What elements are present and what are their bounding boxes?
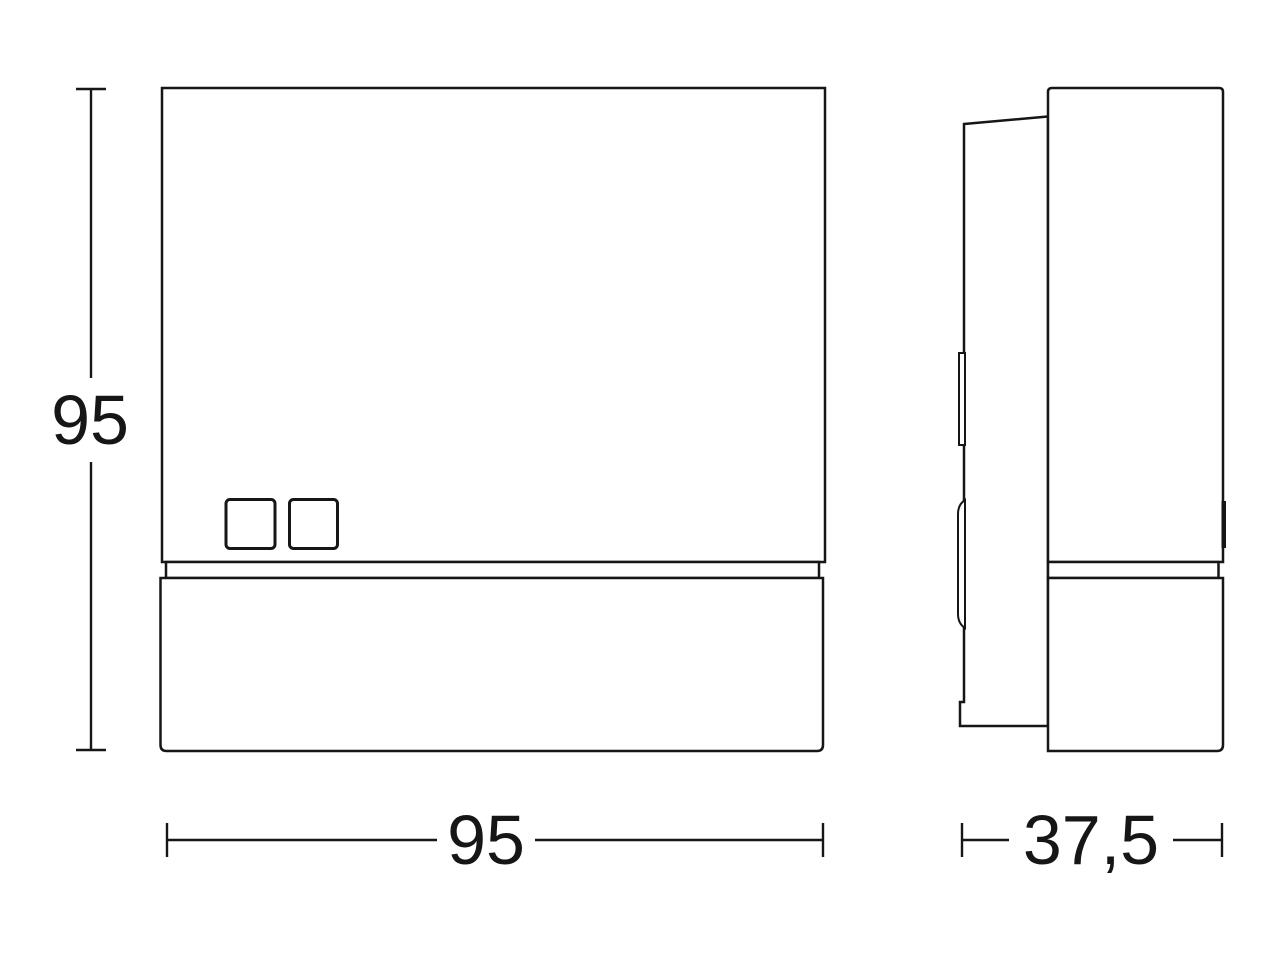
technical-drawing-page: 95 95 37,5 <box>0 0 1280 960</box>
width-dimension-label: 95 <box>447 801 525 879</box>
side-view-bottom-housing <box>1048 578 1223 751</box>
depth-dimension-label: 37,5 <box>1023 801 1159 879</box>
side-view-button-profile <box>1222 501 1227 548</box>
height-dimension-label: 95 <box>51 381 129 459</box>
side-view-mount-strip <box>959 353 965 445</box>
side-view-back-plate <box>960 117 1048 727</box>
side-view-lens-band <box>1048 562 1219 578</box>
depth-dimension: 37,5 <box>962 801 1222 879</box>
height-dimension: 95 <box>51 89 129 750</box>
front-view <box>161 88 826 751</box>
front-view-bottom-housing <box>161 578 824 751</box>
side-view-mount-bump <box>958 500 965 628</box>
front-view-button-right <box>290 500 338 549</box>
front-view-lens-band <box>166 562 819 578</box>
side-view <box>958 88 1226 751</box>
width-dimension: 95 <box>167 801 823 879</box>
side-view-body-outline <box>1048 88 1223 562</box>
technical-drawing-canvas: 95 95 37,5 <box>0 0 1280 960</box>
front-view-button-left <box>226 500 275 549</box>
front-view-body-outline <box>162 88 825 562</box>
